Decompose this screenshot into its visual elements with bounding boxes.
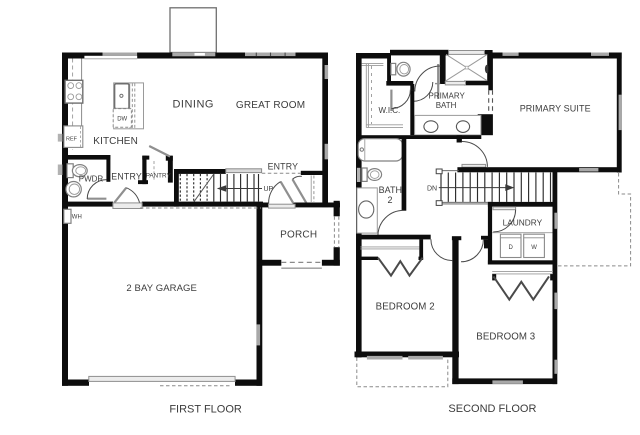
svg-text:REF: REF xyxy=(66,137,78,143)
svg-text:ENTRY: ENTRY xyxy=(268,162,299,172)
svg-text:2: 2 xyxy=(387,195,392,205)
svg-text:PWDR: PWDR xyxy=(79,175,104,184)
svg-text:ENTRY: ENTRY xyxy=(111,172,142,182)
svg-text:D: D xyxy=(509,245,514,251)
svg-text:LAUNDRY: LAUNDRY xyxy=(503,217,543,227)
svg-text:PANTRY: PANTRY xyxy=(146,173,172,180)
svg-text:DW: DW xyxy=(117,117,127,123)
svg-text:DINING: DINING xyxy=(172,99,214,111)
svg-text:PRIMARY: PRIMARY xyxy=(429,92,466,101)
svg-text:BEDROOM 3: BEDROOM 3 xyxy=(476,332,535,343)
svg-text:PORCH: PORCH xyxy=(280,230,317,241)
svg-text:BATH: BATH xyxy=(436,101,457,110)
svg-text:2 BAY GARAGE: 2 BAY GARAGE xyxy=(126,283,197,294)
svg-text:GREAT ROOM: GREAT ROOM xyxy=(236,100,305,111)
svg-text:BATH: BATH xyxy=(379,185,402,195)
svg-text:BEDROOM 2: BEDROOM 2 xyxy=(376,302,435,313)
svg-text:W.I.C.: W.I.C. xyxy=(379,106,401,115)
svg-text:DN: DN xyxy=(427,185,437,192)
svg-text:WH: WH xyxy=(72,214,82,220)
svg-text:KITCHEN: KITCHEN xyxy=(93,136,138,147)
svg-text:SECOND FLOOR: SECOND FLOOR xyxy=(448,403,536,415)
svg-text:FIRST FLOOR: FIRST FLOOR xyxy=(169,404,242,416)
svg-text:PRIMARY SUITE: PRIMARY SUITE xyxy=(520,104,591,114)
svg-text:W: W xyxy=(531,245,537,251)
